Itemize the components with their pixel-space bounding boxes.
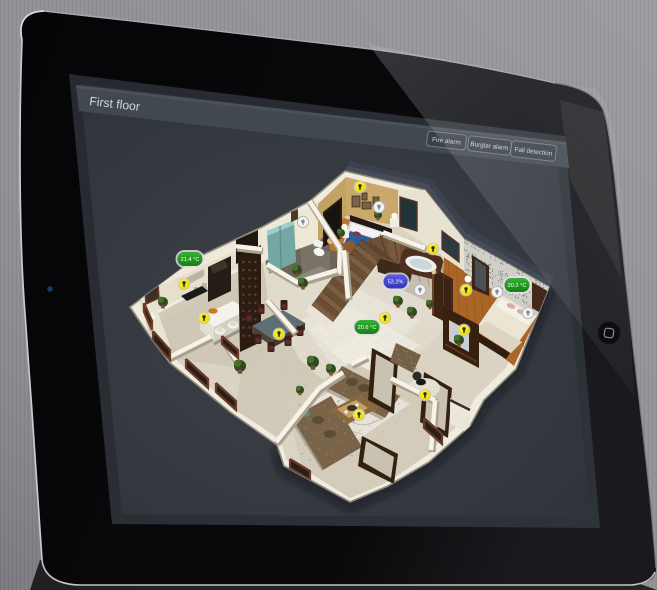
svg-text:20.2 °C: 20.2 °C — [508, 283, 527, 289]
svg-text:20.6 °C: 20.6 °C — [358, 325, 377, 331]
svg-text:53.2%: 53.2% — [388, 280, 404, 286]
svg-text:21.4 °C: 21.4 °C — [181, 257, 200, 263]
